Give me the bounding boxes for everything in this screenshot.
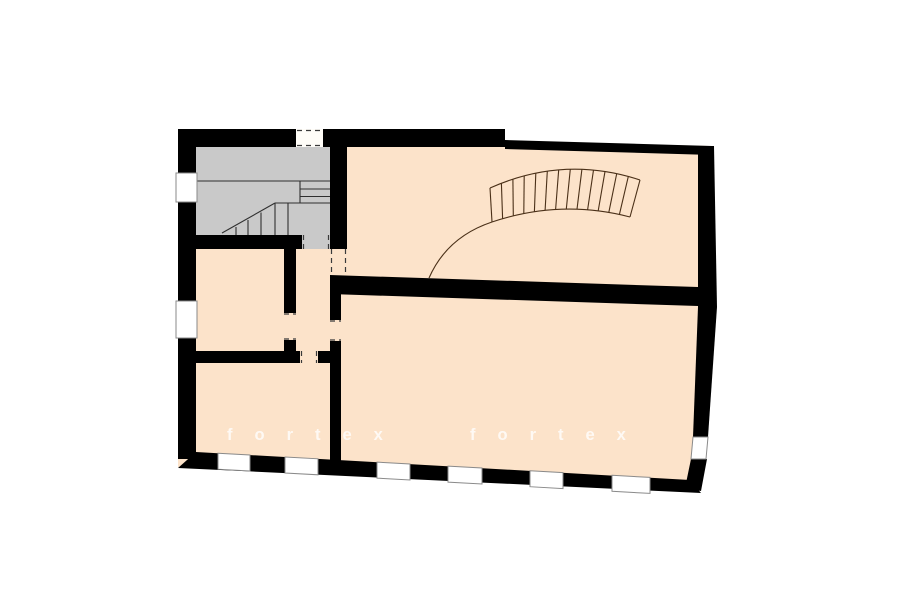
hallway-right-wall-upper	[330, 294, 341, 320]
opening-hallway-bottom-room	[300, 351, 318, 363]
stairwell-room	[196, 147, 330, 235]
window-bottom-3	[377, 462, 410, 480]
floor-plan-svg: fortex fortex	[0, 0, 900, 604]
left-rooms-divider-wall	[196, 351, 300, 363]
opening-top-wall	[296, 129, 323, 147]
window-bottom-4	[448, 466, 482, 484]
watermark-text-right: fortex	[470, 426, 648, 444]
opening-hallway-right-room	[330, 320, 341, 341]
stairwell-bottom-wall	[196, 235, 302, 249]
window-left-2	[176, 301, 197, 338]
opening-stairwell-hallway	[302, 235, 330, 249]
window-bottom-6	[612, 475, 650, 493]
floor-plan-canvas: fortex fortex	[0, 0, 900, 604]
top-wall-middle	[322, 129, 505, 147]
opening-hallway-left-room	[284, 313, 296, 340]
hallway-left-wall-upper	[284, 249, 296, 313]
window-bottom-5	[530, 471, 563, 489]
window-left-1	[176, 173, 197, 202]
stairwell-right-wall	[330, 147, 347, 249]
right-wall-upper	[698, 146, 717, 307]
watermark-text-left: fortex	[227, 426, 405, 444]
opening-hallway-top-room	[330, 249, 347, 275]
divider-wall-piece	[318, 351, 330, 363]
window-bottom-2	[285, 457, 318, 475]
window-bottom-1	[218, 453, 250, 471]
window-right	[691, 437, 708, 459]
